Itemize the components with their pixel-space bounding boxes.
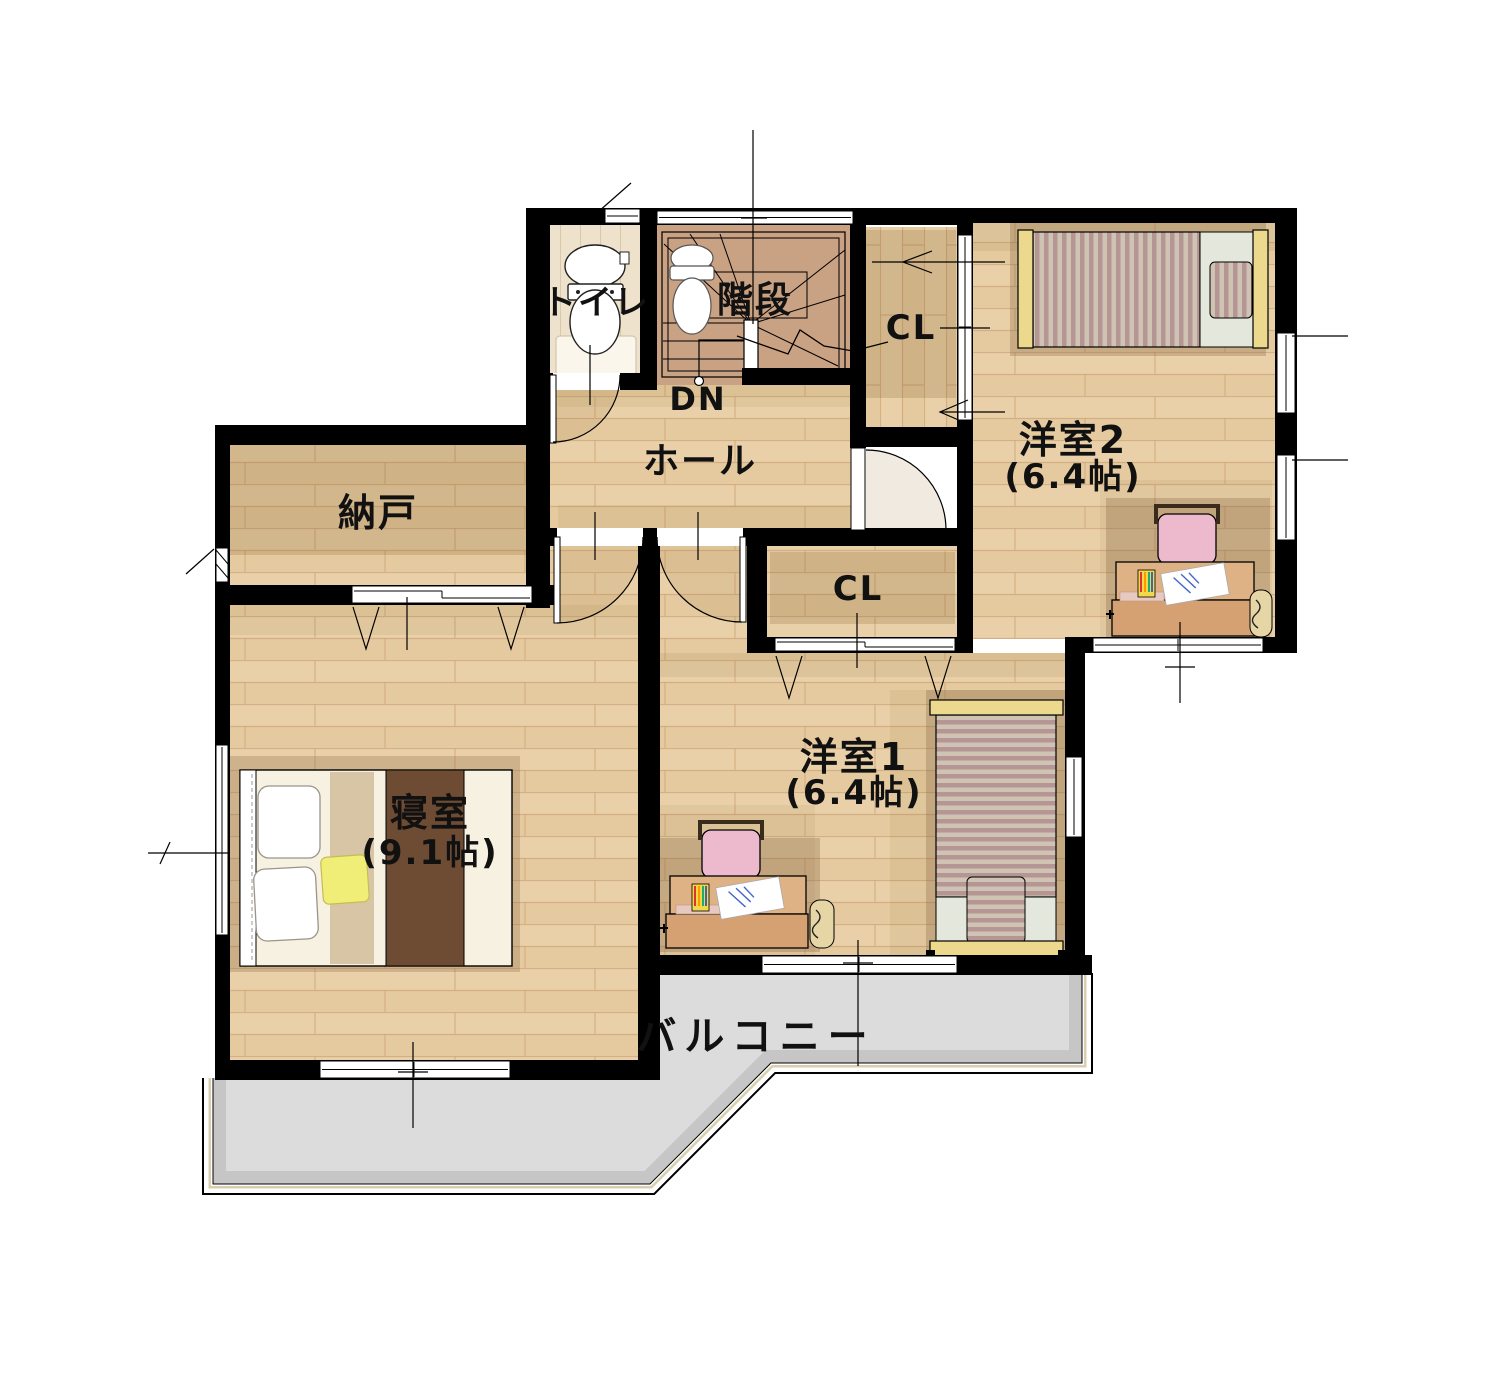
chair-seat (1158, 514, 1216, 564)
desk-set-western2 (1106, 498, 1272, 644)
window (605, 209, 640, 223)
label-toilet: トイレ (542, 286, 650, 320)
window (320, 1061, 510, 1078)
label-western2: 洋室2 (1019, 421, 1127, 459)
door-leaf (550, 375, 556, 443)
pillow (1210, 262, 1252, 318)
label-closet-upper: CL (886, 311, 937, 345)
desk-set-western1 (658, 822, 834, 952)
stool-icon (1250, 590, 1272, 637)
label-balcony: バルコニー (636, 1017, 875, 1057)
stool-icon (810, 900, 834, 948)
toilet-1f-icon (670, 245, 714, 334)
bed-single-western1 (926, 690, 1068, 959)
label-bedroom-area: (9.1帖) (361, 836, 498, 870)
pencil-case-icon (1138, 570, 1155, 597)
label-bedroom: 寝室 (390, 794, 470, 832)
window (216, 548, 228, 582)
label-storage: 納戸 (338, 494, 418, 532)
label-hall: ホール (643, 444, 757, 480)
floor-plan-drawing (0, 0, 1492, 1381)
bed-single-western2 (1010, 222, 1268, 356)
label-western2-area: (6.4帖) (1004, 460, 1141, 494)
desk-front (666, 914, 808, 948)
floor-plan: トイレ 階段 DN ホール 納戸 CL CL 寝室 (9.1帖) 洋室1 (6.… (0, 0, 1492, 1381)
sliding-door (352, 586, 532, 603)
window (216, 745, 228, 935)
label-closet-middle: CL (833, 572, 884, 606)
pillow (258, 786, 320, 858)
window (762, 956, 957, 973)
window (1066, 757, 1082, 837)
pillow (967, 877, 1025, 943)
label-stairs-dn: DN (669, 383, 726, 415)
label-western1: 洋室1 (800, 738, 908, 776)
door-leaf (851, 448, 865, 530)
window (1277, 333, 1295, 413)
pencil-case-icon (692, 884, 709, 911)
window (1093, 638, 1263, 652)
desk-front (1112, 600, 1256, 636)
window (1277, 455, 1295, 540)
label-western1-area: (6.4帖) (785, 776, 922, 810)
door-leaf (740, 537, 746, 622)
chair-seat (702, 830, 760, 878)
pillow (253, 866, 319, 941)
label-stairs: 階段 (717, 283, 793, 319)
sliding-door (775, 638, 955, 651)
door-leaf (554, 537, 560, 623)
